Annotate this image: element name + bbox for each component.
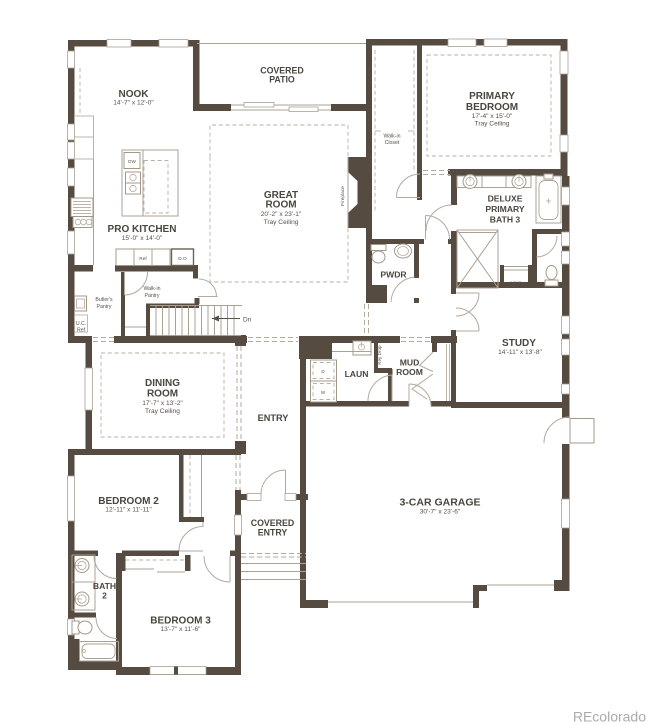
svg-text:COVERED: COVERED <box>251 518 295 528</box>
svg-text:Closet: Closet <box>385 140 400 146</box>
svg-text:Pantry: Pantry <box>97 304 112 310</box>
svg-text:PWDR: PWDR <box>380 270 407 280</box>
svg-text:Tray Ceiling: Tray Ceiling <box>475 121 510 128</box>
svg-text:DINING: DINING <box>145 378 180 389</box>
svg-text:MUD: MUD <box>400 358 420 368</box>
svg-text:BEDROOM 3: BEDROOM 3 <box>150 616 211 627</box>
svg-text:STUDY: STUDY <box>502 338 536 349</box>
svg-text:15'-0" x 14'-0": 15'-0" x 14'-0" <box>122 235 163 242</box>
svg-text:12'-11" x 11'-11": 12'-11" x 11'-11" <box>105 507 152 514</box>
svg-text:17'-4" x 15'-0": 17'-4" x 15'-0" <box>472 113 513 120</box>
svg-text:2: 2 <box>102 591 107 601</box>
svg-text:17'-7" x 13'-2": 17'-7" x 13'-2" <box>142 400 183 407</box>
svg-text:Fireplace: Fireplace <box>340 186 346 206</box>
svg-text:U.C.: U.C. <box>76 321 86 327</box>
svg-text:14'-11" x 13'-8": 14'-11" x 13'-8" <box>498 349 542 356</box>
svg-text:BEDROOM 2: BEDROOM 2 <box>98 496 159 507</box>
svg-text:Walk-in: Walk-in <box>383 134 400 140</box>
svg-text:Ref: Ref <box>139 256 147 262</box>
svg-text:DW: DW <box>128 159 136 164</box>
svg-text:DELUXE: DELUXE <box>488 194 523 204</box>
svg-text:D.O: D.O <box>178 256 187 262</box>
svg-text:Ref: Ref <box>77 328 86 334</box>
svg-text:ENTRY: ENTRY <box>258 413 289 423</box>
svg-text:PATIO: PATIO <box>269 75 295 85</box>
svg-text:REcolorado: REcolorado <box>573 709 646 725</box>
svg-text:ROOM: ROOM <box>396 367 423 377</box>
svg-text:NOOK: NOOK <box>119 89 150 100</box>
svg-text:PRIMARY: PRIMARY <box>485 204 525 214</box>
svg-text:BATH 3: BATH 3 <box>490 215 521 225</box>
svg-text:Tray Ceiling: Tray Ceiling <box>145 408 180 415</box>
svg-text:PRO KITCHEN: PRO KITCHEN <box>108 224 177 235</box>
svg-text:Walk-in: Walk-in <box>143 286 160 292</box>
svg-text:Linen: Linen <box>510 280 522 285</box>
svg-text:Tray Ceiling: Tray Ceiling <box>264 219 299 226</box>
svg-text:20'-2" x 23'-1": 20'-2" x 23'-1" <box>261 211 302 218</box>
svg-text:LAUN: LAUN <box>345 369 369 379</box>
svg-text:Key Drop: Key Drop <box>377 345 382 365</box>
svg-text:Pantry: Pantry <box>145 293 160 299</box>
svg-text:13'-7" x 11'-6": 13'-7" x 11'-6" <box>160 626 201 633</box>
svg-text:14'-7" x 12'-0": 14'-7" x 12'-0" <box>113 100 154 107</box>
svg-text:Butler's: Butler's <box>95 297 113 303</box>
svg-text:BATH: BATH <box>93 581 116 591</box>
svg-text:30'-7" x 23'-6": 30'-7" x 23'-6" <box>420 509 461 516</box>
svg-text:ENTRY: ENTRY <box>258 528 288 538</box>
svg-text:BEDROOM: BEDROOM <box>466 102 518 113</box>
svg-text:3-CAR GARAGE: 3-CAR GARAGE <box>399 497 480 509</box>
svg-text:ROOM: ROOM <box>147 389 178 400</box>
svg-text:Dn: Dn <box>243 317 252 324</box>
svg-text:PRIMARY: PRIMARY <box>469 91 515 102</box>
svg-text:ROOM: ROOM <box>265 200 296 211</box>
